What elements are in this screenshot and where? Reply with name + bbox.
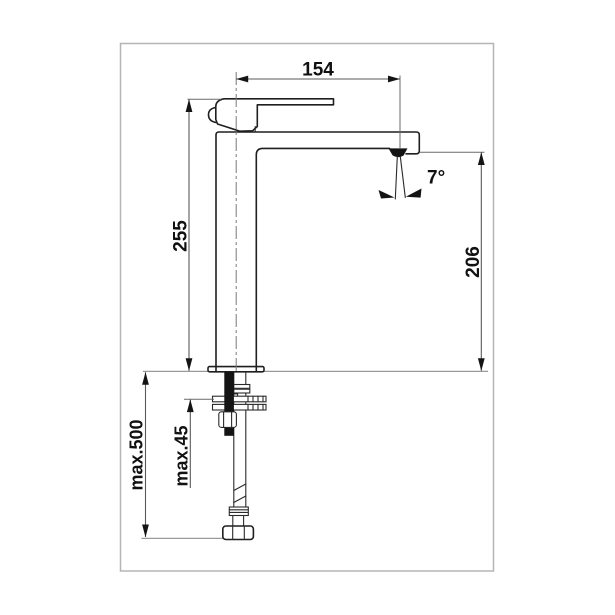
- dimension-label-154: 154: [302, 60, 334, 81]
- dimension-label-angle: 7°: [427, 168, 445, 189]
- hose-nut: [223, 526, 254, 540]
- drawing-page: 154 255 206 7° max.50: [0, 0, 615, 615]
- dimension-label-max45: max.45: [172, 425, 192, 486]
- dimension-label-206: 206: [463, 246, 484, 278]
- technical-drawing-canvas: 154 255 206 7° max.50: [0, 0, 615, 615]
- mounting-nut: [219, 412, 237, 428]
- dimension-label-255: 255: [171, 220, 192, 252]
- dimension-label-max500: max.500: [127, 419, 147, 490]
- page-background: [0, 0, 615, 615]
